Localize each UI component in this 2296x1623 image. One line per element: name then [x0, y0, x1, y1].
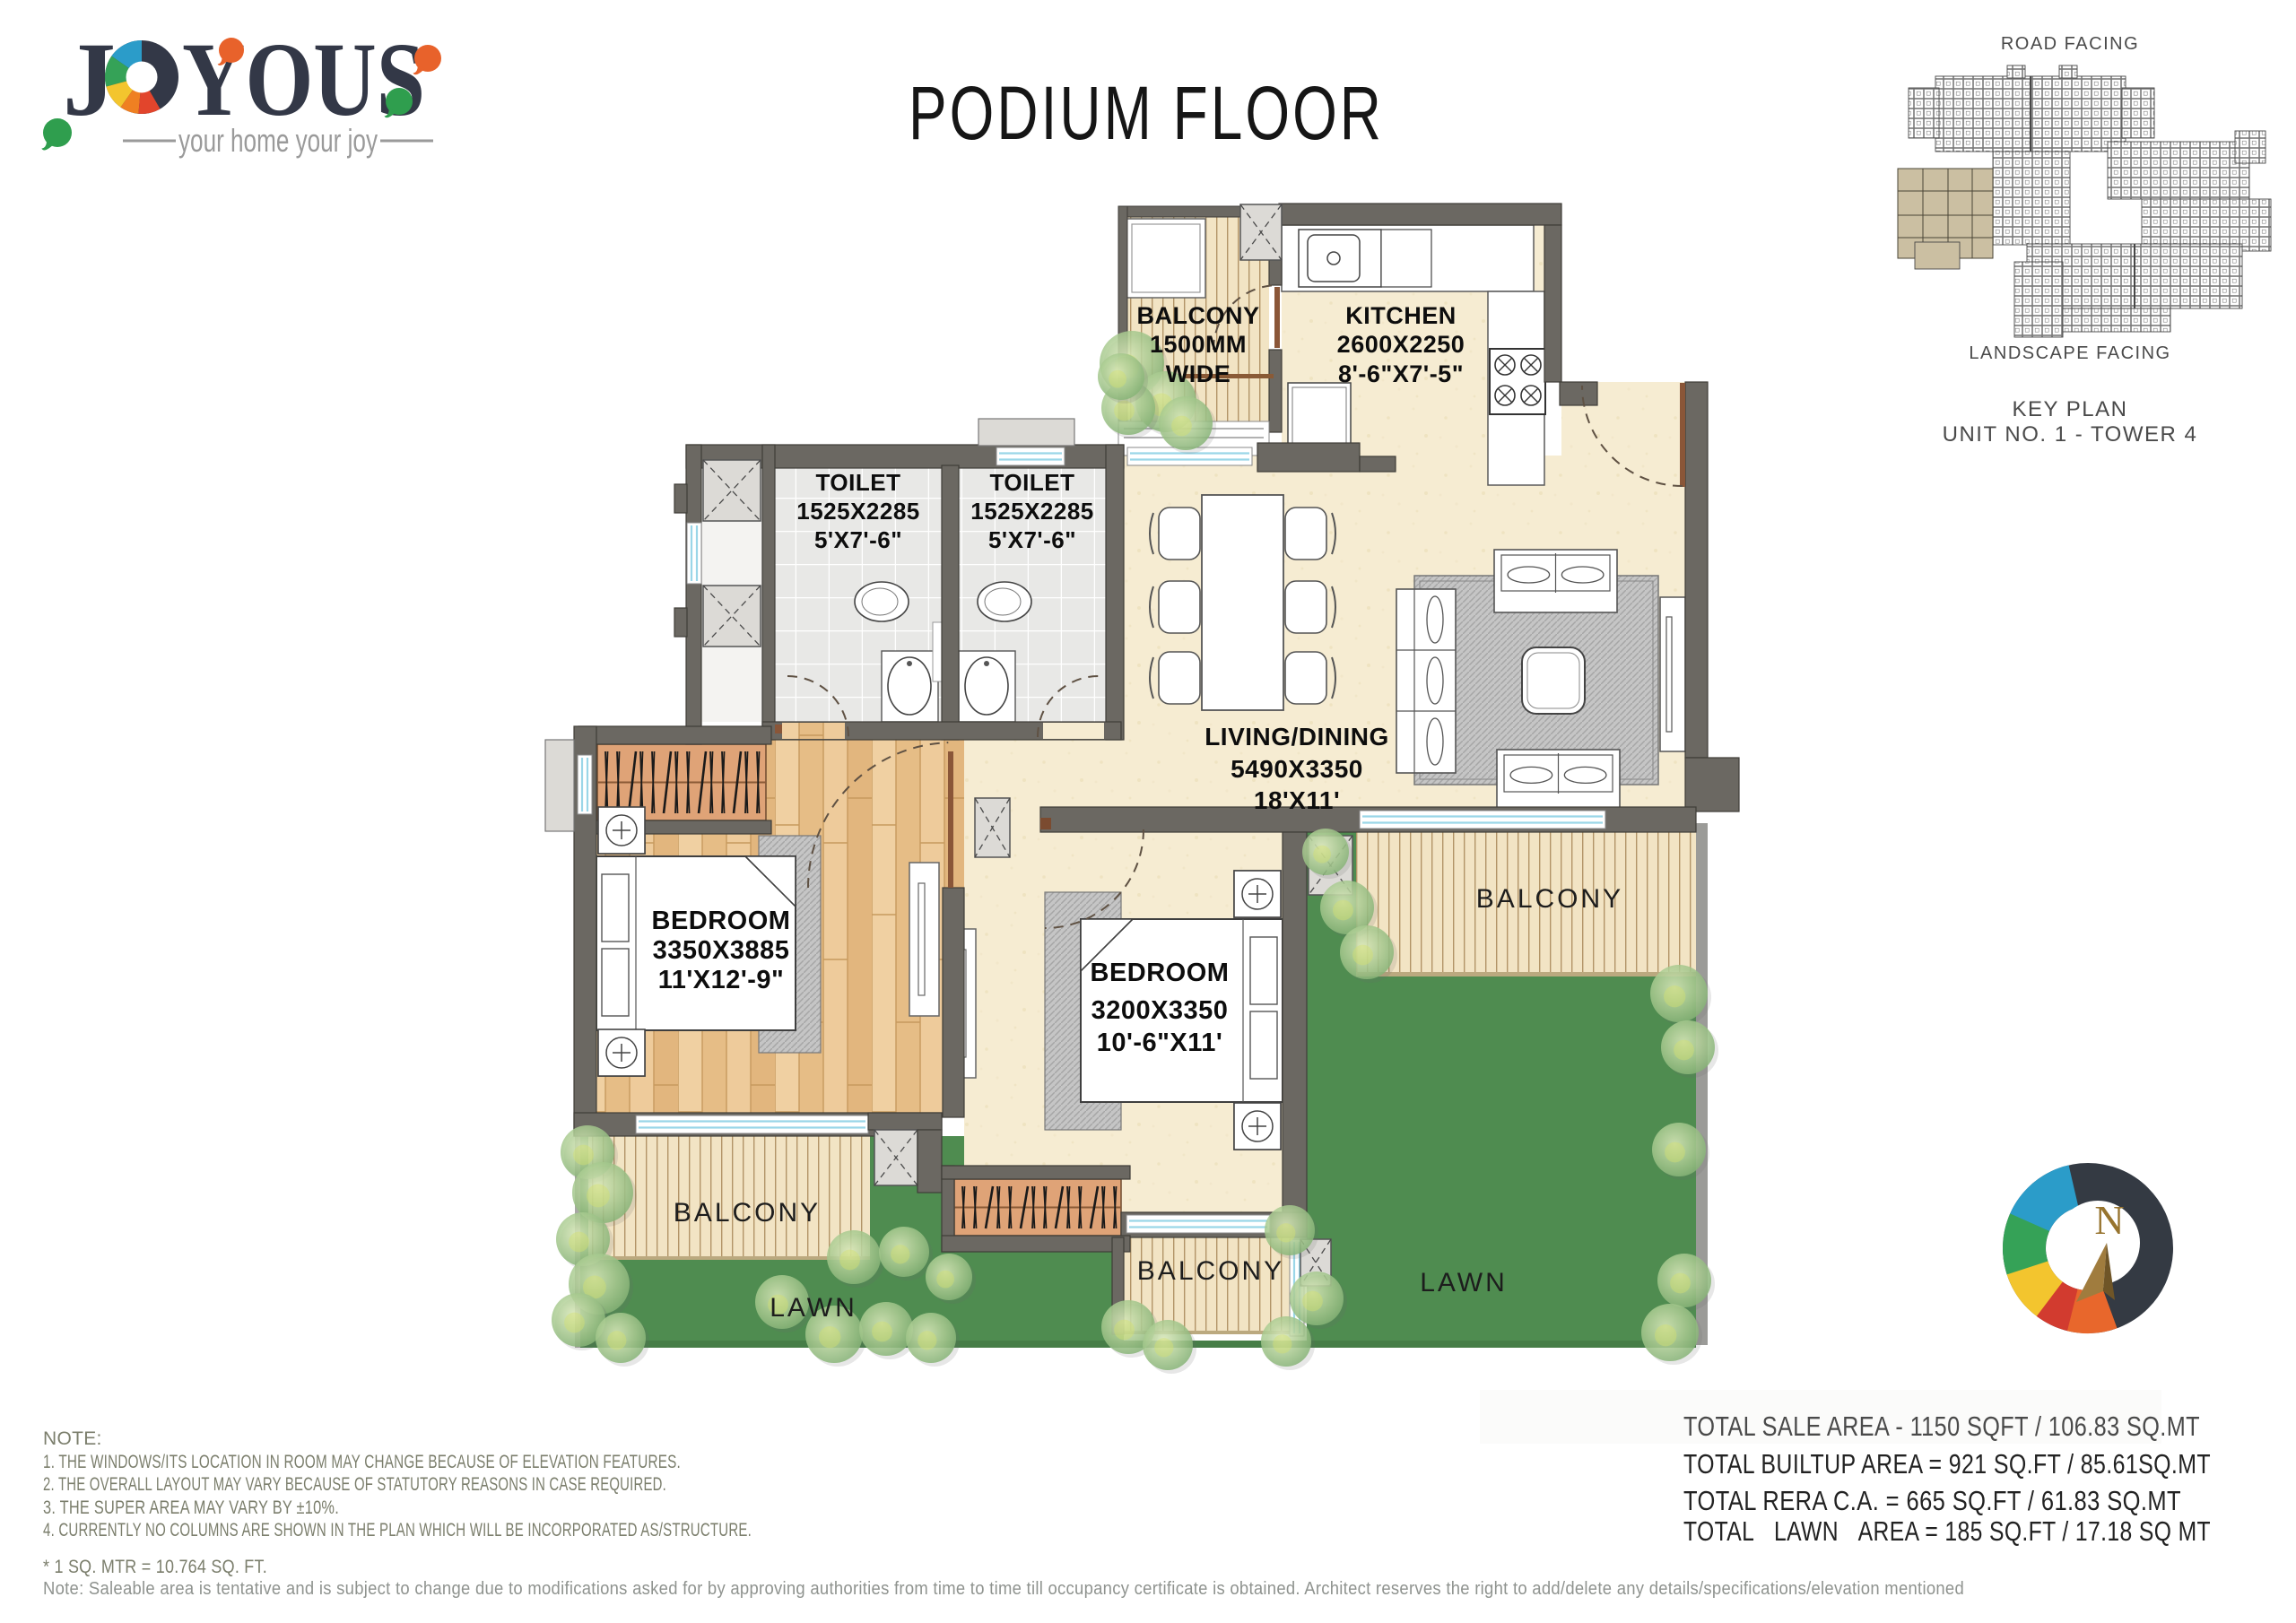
svg-text:5'X7'-6": 5'X7'-6" [988, 526, 1076, 553]
svg-text:N: N [2094, 1197, 2124, 1243]
svg-text:4. CURRENTLY NO COLUMNS ARE SH: 4. CURRENTLY NO COLUMNS ARE SHOWN IN THE… [43, 1520, 752, 1541]
svg-text:KITCHEN: KITCHEN [1345, 302, 1457, 329]
svg-text:3200X3350: 3200X3350 [1091, 996, 1229, 1025]
svg-text:2. THE OVERALL LAYOUT MAY VARY: 2. THE OVERALL LAYOUT MAY VARY BECAUSE O… [43, 1474, 666, 1495]
svg-text:LIVING/DINING: LIVING/DINING [1205, 723, 1389, 751]
svg-text:8'-6"X7'-5": 8'-6"X7'-5" [1338, 360, 1464, 387]
svg-text:1. THE WINDOWS/ITS LOCATION IN: 1. THE WINDOWS/ITS LOCATION IN ROOM MAY … [43, 1452, 681, 1472]
svg-text:LAWN: LAWN [770, 1293, 857, 1323]
svg-text:5490X3350: 5490X3350 [1231, 755, 1363, 783]
svg-text:ROAD FACING: ROAD FACING [2001, 34, 2139, 54]
svg-text:10'-6"X11': 10'-6"X11' [1097, 1028, 1223, 1057]
svg-text:LANDSCAPE FACING: LANDSCAPE FACING [1969, 343, 2170, 363]
svg-text:PODIUM FLOOR: PODIUM FLOOR [909, 71, 1384, 155]
svg-text:3350X3885: 3350X3885 [653, 936, 790, 965]
svg-text:1525X2285: 1525X2285 [796, 498, 920, 525]
svg-text:2600X2250: 2600X2250 [1337, 331, 1465, 358]
svg-text:Note: Saleable area is tentati: Note: Saleable area is tentative and is … [43, 1579, 1964, 1599]
svg-text:1500MM: 1500MM [1150, 331, 1247, 358]
svg-text:UNIT NO. 1 - TOWER 4: UNIT NO. 1 - TOWER 4 [1943, 422, 2198, 447]
svg-text:5'X7'-6": 5'X7'-6" [814, 526, 902, 553]
svg-text:BALCONY: BALCONY [1137, 1256, 1284, 1286]
svg-text:TOTAL RERA C.A. = 665 SQ.FT /: TOTAL RERA C.A. = 665 SQ.FT / 61.83 SQ.M… [1683, 1485, 2181, 1516]
svg-text:LAWN: LAWN [1420, 1268, 1508, 1298]
svg-text:BEDROOM: BEDROOM [652, 907, 791, 935]
svg-text:18'X11': 18'X11' [1254, 786, 1340, 814]
svg-text:BEDROOM: BEDROOM [1091, 959, 1230, 987]
svg-text:TOILET: TOILET [816, 469, 901, 496]
svg-text:TOTAL SALE AREA - 1150 SQFT /: TOTAL SALE AREA - 1150 SQFT / 106.83 SQ.… [1683, 1410, 2200, 1442]
svg-text:3. THE SUPER AREA MAY VARY BY: 3. THE SUPER AREA MAY VARY BY ±10%. [43, 1497, 339, 1518]
svg-text:NOTE:: NOTE: [43, 1428, 102, 1449]
svg-text:BALCONY: BALCONY [1137, 302, 1260, 329]
svg-text:KEY PLAN: KEY PLAN [2013, 397, 2128, 421]
svg-text:WIDE: WIDE [1166, 360, 1231, 387]
svg-text:TOILET: TOILET [990, 469, 1075, 496]
svg-text:11'X12'-9": 11'X12'-9" [658, 966, 785, 994]
svg-text:* 1 SQ. MTR = 10.764 SQ. FT.: * 1 SQ. MTR = 10.764 SQ. FT. [43, 1557, 267, 1577]
svg-text:1525X2285: 1525X2285 [970, 498, 1094, 525]
svg-text:YOUS: YOUS [182, 21, 425, 138]
svg-text:TOTAL LAWN AREA = 185 SQ.F: TOTAL LAWN AREA = 185 SQ.FT / 17.18 SQ M… [1683, 1515, 2211, 1547]
svg-text:BALCONY: BALCONY [1476, 884, 1623, 914]
svg-text:your home your joy: your home your joy [178, 122, 378, 159]
svg-text:BALCONY: BALCONY [674, 1198, 821, 1228]
svg-text:TOTAL BUILTUP AREA = 921 SQ.FT: TOTAL BUILTUP AREA = 921 SQ.FT / 85.61SQ… [1683, 1448, 2211, 1480]
